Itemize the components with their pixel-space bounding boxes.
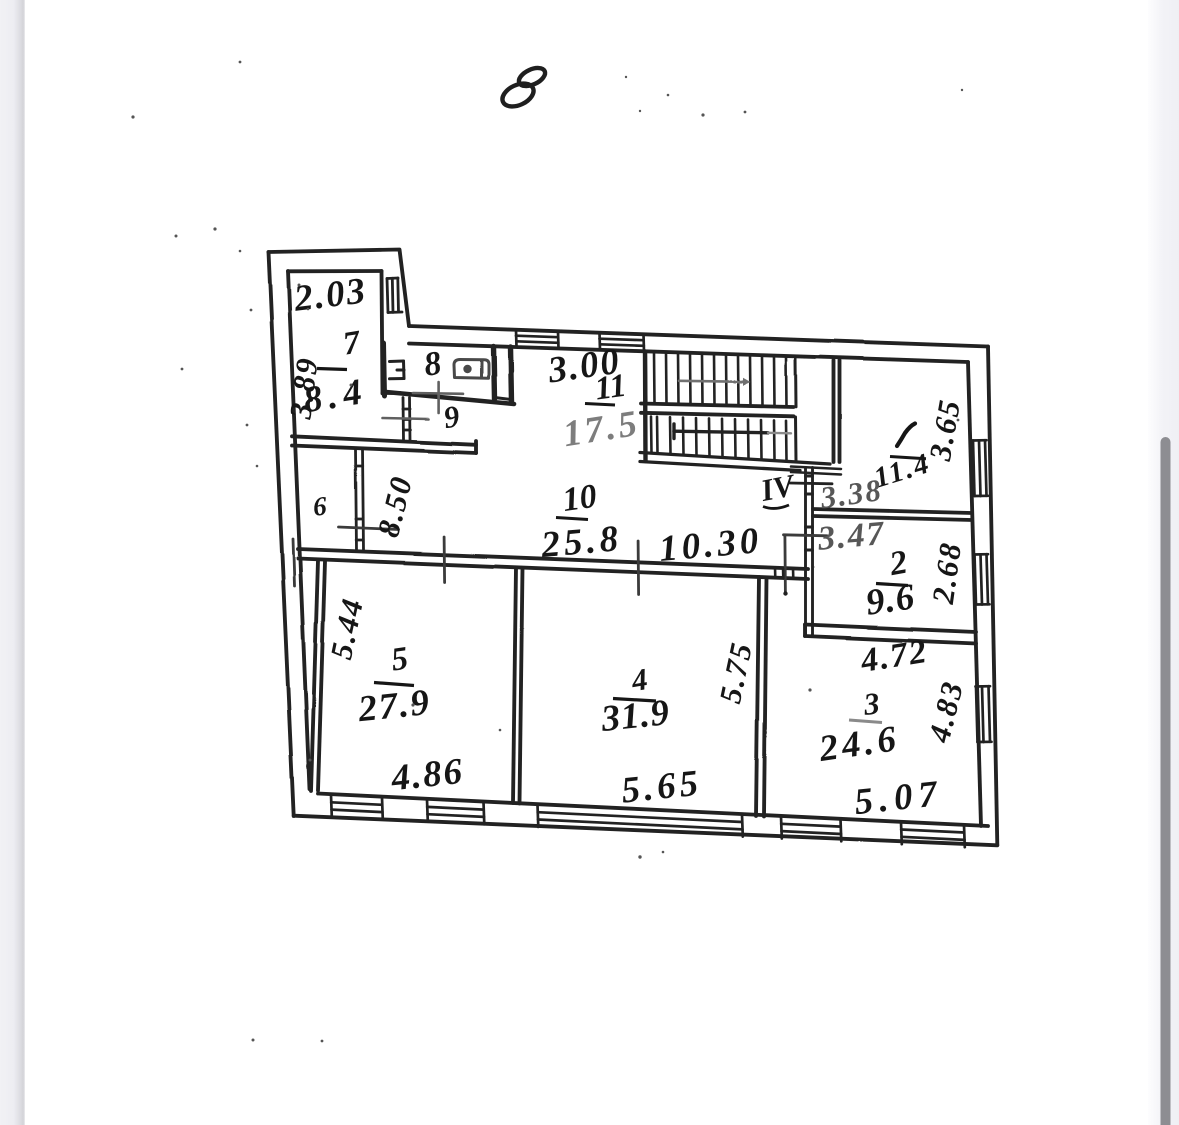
- svg-text:11: 11: [593, 368, 629, 408]
- svg-text:27.9: 27.9: [355, 682, 433, 730]
- svg-text:9.6: 9.6: [863, 576, 917, 623]
- svg-text:31.9: 31.9: [598, 692, 672, 740]
- svg-text:4.86: 4.86: [388, 751, 466, 799]
- svg-text:3.47: 3.47: [816, 515, 887, 558]
- svg-text:10: 10: [560, 478, 599, 519]
- svg-text:25.8: 25.8: [539, 518, 624, 566]
- svg-text:5.65: 5.65: [619, 762, 704, 811]
